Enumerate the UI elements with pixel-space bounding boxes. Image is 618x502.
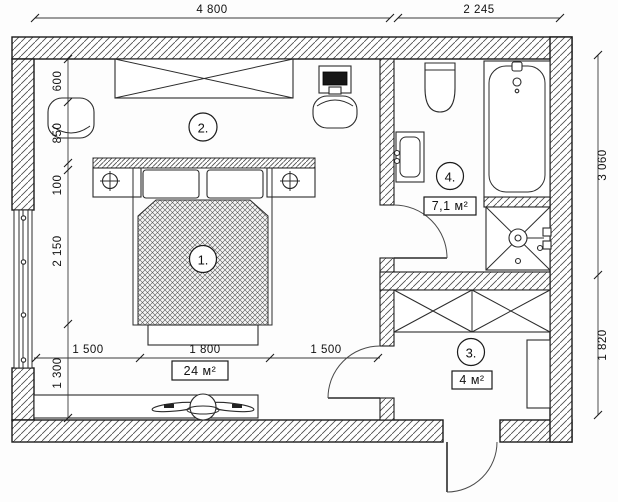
- tv-screen-icon: [323, 72, 347, 85]
- window-hinge-icon: [21, 313, 25, 317]
- room-badge-4: 4.: [437, 163, 464, 190]
- dim-label: 1 820: [597, 329, 609, 360]
- dim-label: 4 800: [196, 4, 227, 16]
- room-number: 3.: [466, 346, 477, 361]
- tap-icon: [395, 159, 400, 164]
- headboard-panel: [93, 158, 315, 168]
- keyboard-icon: [329, 87, 341, 94]
- room-badge-2: 2.: [189, 113, 217, 141]
- window-hinge-icon: [21, 216, 25, 220]
- wall-bedroom-hall-stub: [380, 398, 394, 420]
- wall-left-lower: [12, 368, 34, 420]
- area-value: 24 м²: [184, 364, 217, 378]
- room-number: 2.: [198, 121, 209, 136]
- washbasin: [395, 132, 425, 182]
- area-label-hall: 4 м²: [452, 371, 492, 389]
- leaf-tip: [164, 404, 174, 408]
- dimension-bottom: 1 500 1 800 1 500: [32, 344, 382, 362]
- toilet: [425, 63, 455, 112]
- wall-left-upper: [12, 59, 34, 210]
- leaf-tip: [232, 404, 242, 408]
- dim-label: 850: [52, 123, 64, 144]
- bathtub: [484, 61, 550, 197]
- area-value: 4 м²: [459, 373, 484, 387]
- desk-chair: [313, 96, 357, 128]
- area-value: 7,1 м²: [432, 199, 469, 213]
- shower-tray: [486, 207, 551, 270]
- dim-label: 3 060: [597, 149, 609, 180]
- area-label-bedroom: 24 м²: [172, 361, 228, 380]
- drain-icon: [515, 235, 521, 241]
- tv-desk: [319, 66, 351, 94]
- bedroom-wardrobe: [115, 59, 293, 98]
- wall-right: [550, 37, 572, 442]
- window: [14, 210, 32, 368]
- window-hinge-icon: [21, 358, 25, 362]
- entrance-door: [447, 442, 497, 492]
- hall-shelf: [527, 340, 550, 408]
- floor-plan-drawing: 4 800 2 245 3 060 1 820 600 850 100 2 15…: [0, 0, 618, 502]
- dim-label: 2 150: [52, 235, 64, 266]
- area-label-bathroom: 7,1 м²: [424, 197, 476, 215]
- dim-label: 600: [52, 71, 64, 92]
- dim-label: 1 500: [72, 344, 103, 356]
- bed-foot-bench: [148, 325, 258, 345]
- hall-wardrobe: [394, 290, 550, 332]
- wall-bottom-left: [12, 420, 443, 442]
- partition-tub-shower: [484, 197, 550, 207]
- room-badge-1: 1.: [190, 246, 217, 273]
- pillow: [207, 170, 263, 198]
- dim-label: 100: [52, 175, 64, 196]
- floor-plan-canvas: 4 800 2 245 3 060 1 820 600 850 100 2 15…: [0, 0, 618, 502]
- dimension-top: 4 800 2 245: [31, 4, 564, 22]
- dim-label: 1 500: [310, 344, 341, 356]
- pillow: [143, 170, 199, 198]
- drain-icon: [516, 259, 521, 264]
- room-number: 1.: [198, 253, 209, 268]
- room-badge-3: 3.: [458, 339, 485, 366]
- wall-bathroom-hall: [380, 272, 550, 290]
- dimension-right: 3 060 1 820: [594, 51, 609, 419]
- dim-label: 1 300: [52, 357, 64, 388]
- door-swing-arc: [447, 442, 497, 492]
- room-number: 4.: [445, 170, 456, 185]
- dim-label: 1 800: [189, 344, 220, 356]
- window-hinge-icon: [21, 260, 25, 264]
- wall-top: [12, 37, 572, 59]
- wall-bedroom-bathroom-upper: [380, 59, 394, 205]
- tap-icon: [395, 151, 400, 156]
- dim-label: 2 245: [463, 4, 494, 16]
- wall-bedroom-bathroom-mid: [380, 258, 394, 346]
